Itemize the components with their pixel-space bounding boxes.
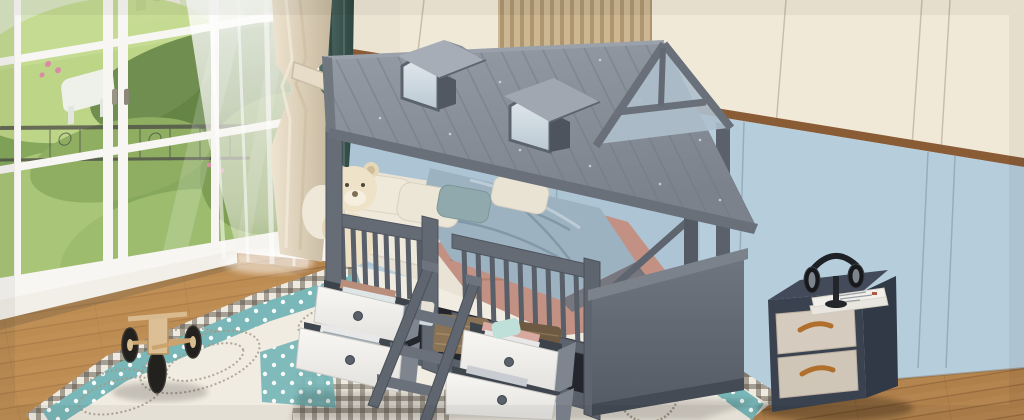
house-bed xyxy=(290,40,760,420)
bed-post-left xyxy=(326,126,342,308)
nightstand-drawer-2 xyxy=(778,350,858,398)
trike-front-wheel xyxy=(148,351,166,393)
drawer-knob xyxy=(346,356,355,365)
scene-canvas xyxy=(0,0,1024,420)
drawer-knob xyxy=(505,358,514,367)
drawer-knob xyxy=(498,396,507,405)
bedroom-photo xyxy=(0,0,1024,420)
drawer-knob xyxy=(354,312,363,321)
